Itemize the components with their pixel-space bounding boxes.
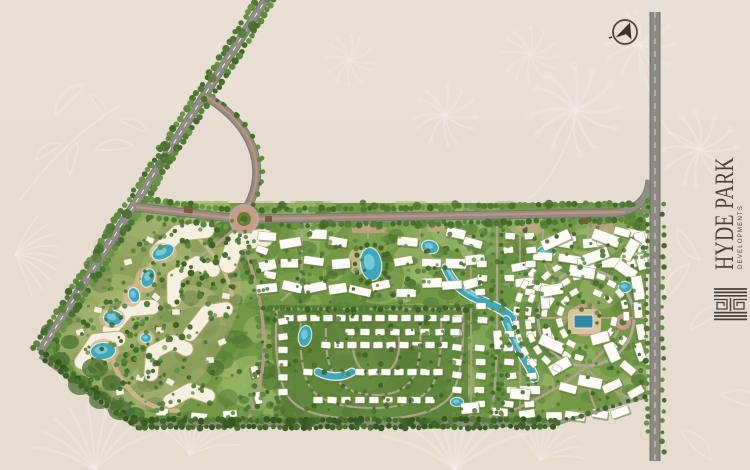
svg-text:DEVELOPMENTS: DEVELOPMENTS [737,205,744,269]
svg-text:HYDE PARK: HYDE PARK [710,157,739,270]
